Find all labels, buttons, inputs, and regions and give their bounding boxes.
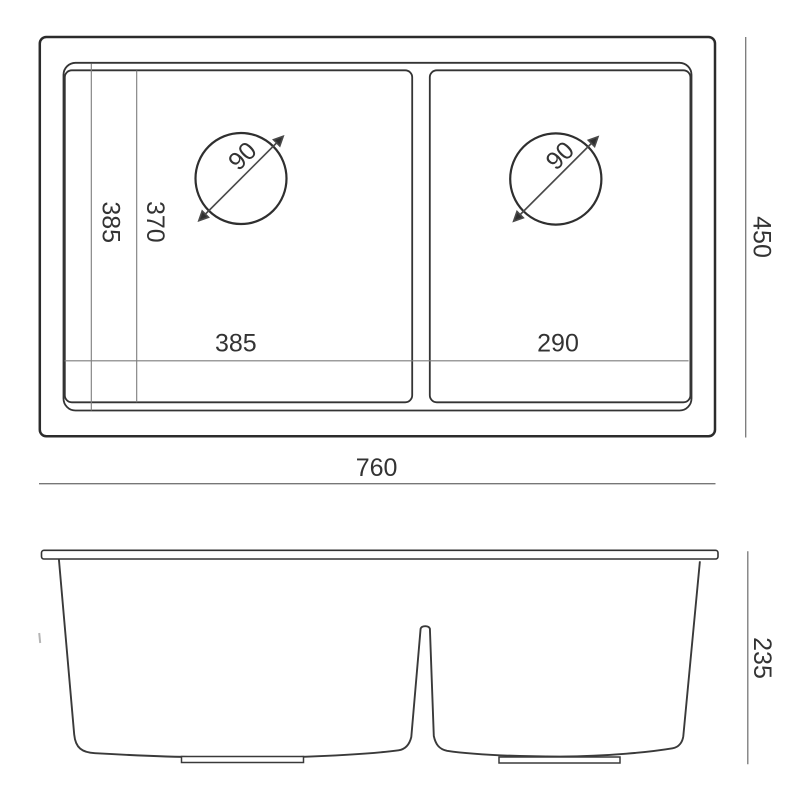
svg-text:760: 760	[356, 454, 398, 482]
svg-text:385: 385	[97, 201, 125, 243]
svg-text:385: 385	[215, 329, 257, 357]
svg-text:370: 370	[141, 201, 169, 243]
svg-text:290: 290	[537, 329, 579, 357]
svg-text:450: 450	[748, 216, 776, 258]
svg-text:235: 235	[748, 637, 776, 679]
